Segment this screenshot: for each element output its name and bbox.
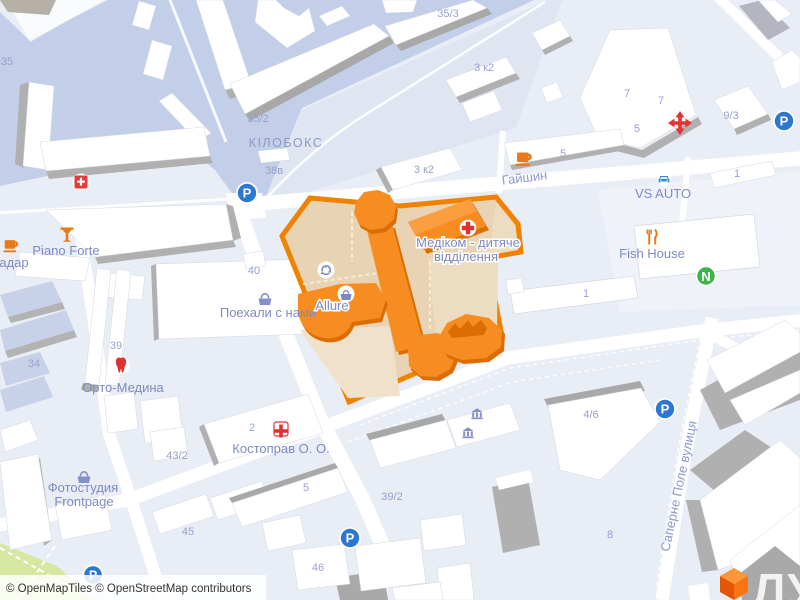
svg-text:1: 1: [734, 168, 740, 180]
svg-text:45: 45: [182, 526, 194, 538]
svg-text:Медіком - дитяче: Медіком - дитяче: [416, 235, 520, 250]
svg-text:КІЛОБОКС: КІЛОБОКС: [249, 136, 324, 150]
svg-text:38в: 38в: [265, 165, 283, 177]
svg-text:Fish House: Fish House: [619, 246, 685, 261]
svg-text:5: 5: [634, 123, 640, 135]
svg-text:Piano Forte: Piano Forte: [32, 243, 99, 258]
svg-text:46: 46: [312, 562, 324, 574]
svg-text:40: 40: [248, 265, 260, 277]
svg-text:Орто-Медина: Орто-Медина: [82, 380, 164, 395]
svg-text:7: 7: [658, 95, 664, 107]
svg-text:VS AUTO: VS AUTO: [635, 186, 691, 201]
svg-text:Frontpage: Frontpage: [54, 494, 113, 509]
svg-text:ЛУН: ЛУН: [753, 564, 800, 600]
svg-text:3 к2: 3 к2: [414, 164, 434, 176]
svg-text:35: 35: [1, 56, 13, 68]
svg-text:P: P: [346, 531, 355, 546]
svg-text:3 к2: 3 к2: [474, 62, 494, 74]
svg-text:39: 39: [110, 340, 122, 352]
svg-text:35/3: 35/3: [437, 8, 458, 20]
svg-text:34: 34: [28, 358, 40, 370]
svg-text:2: 2: [249, 422, 255, 434]
svg-text:35/2: 35/2: [247, 113, 268, 125]
svg-text:адар: адар: [0, 255, 29, 270]
svg-text:39/2: 39/2: [381, 491, 402, 503]
svg-text:7: 7: [624, 88, 630, 100]
svg-text:1: 1: [583, 288, 589, 300]
svg-text:P: P: [780, 114, 789, 129]
svg-text:відділення: відділення: [434, 249, 498, 264]
svg-text:Поехали с нами: Поехали с нами: [220, 305, 316, 320]
svg-text:© OpenMapTiles © OpenStreetMap: © OpenMapTiles © OpenStreetMap contribut…: [6, 583, 252, 595]
svg-text:N: N: [701, 269, 710, 284]
svg-text:43/2: 43/2: [166, 450, 187, 462]
svg-text:Костоправ О. О.: Костоправ О. О.: [232, 441, 329, 456]
svg-text:P: P: [661, 402, 670, 417]
svg-text:5: 5: [560, 148, 566, 160]
svg-text:9/3: 9/3: [723, 110, 738, 122]
svg-text:P: P: [243, 186, 252, 201]
svg-text:8: 8: [607, 529, 613, 541]
svg-text:5: 5: [303, 482, 309, 494]
svg-text:4/6: 4/6: [583, 409, 598, 421]
